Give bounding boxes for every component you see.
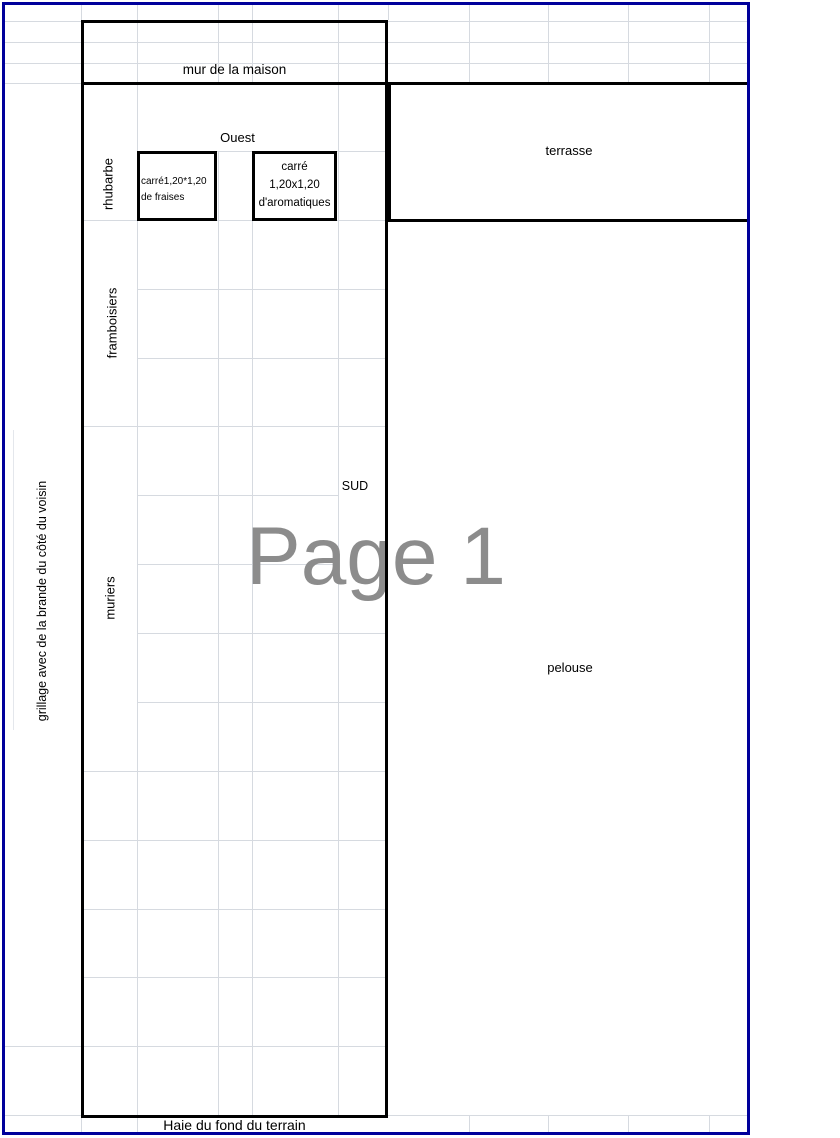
- page-break-boundary[interactable]: [2, 2, 750, 1135]
- worksheet-page-break-preview: Page 1 mur de la maison Ouest terrasse r…: [0, 0, 840, 1138]
